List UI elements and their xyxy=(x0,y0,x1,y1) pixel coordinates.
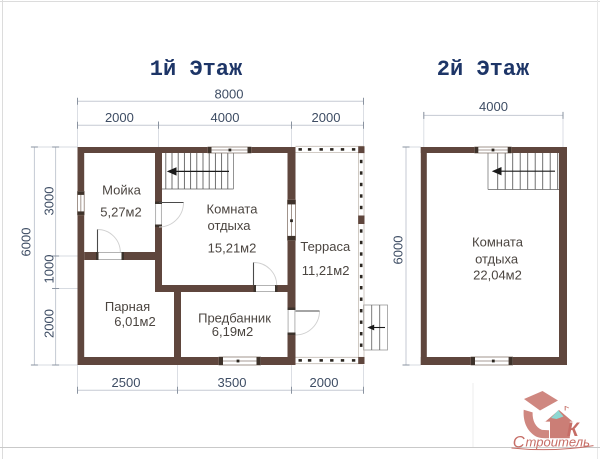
svg-text:2000: 2000 xyxy=(105,110,134,125)
svg-text:3500: 3500 xyxy=(218,375,247,390)
svg-text:6,19м2: 6,19м2 xyxy=(212,324,253,339)
svg-text:2000: 2000 xyxy=(42,309,57,338)
svg-text:8000: 8000 xyxy=(215,87,244,102)
svg-text:6,01м2: 6,01м2 xyxy=(114,314,155,329)
svg-text:4000: 4000 xyxy=(211,110,240,125)
svg-text:отдыха: отдыха xyxy=(475,251,519,266)
svg-text:Комната: Комната xyxy=(472,235,524,250)
svg-text:6000: 6000 xyxy=(19,228,34,257)
svg-text:1000: 1000 xyxy=(42,255,57,284)
svg-text:4000: 4000 xyxy=(479,99,508,114)
svg-text:Парная: Парная xyxy=(105,299,150,314)
svg-text:1й Этаж: 1й Этаж xyxy=(150,57,243,82)
svg-text:15,21м2: 15,21м2 xyxy=(208,241,257,256)
svg-text:2й Этаж: 2й Этаж xyxy=(437,57,530,82)
svg-text:6000: 6000 xyxy=(391,236,406,265)
svg-text:5,27м2: 5,27м2 xyxy=(100,205,141,220)
svg-text:отдыха: отдыха xyxy=(208,218,252,233)
svg-text:11,21м2: 11,21м2 xyxy=(302,263,350,278)
svg-text:2000: 2000 xyxy=(310,375,339,390)
svg-text:3000: 3000 xyxy=(42,187,57,216)
svg-text:2000: 2000 xyxy=(312,110,341,125)
svg-text:Терраса: Терраса xyxy=(300,239,351,254)
svg-text:Комната: Комната xyxy=(207,202,259,217)
svg-text:Мойка: Мойка xyxy=(102,183,141,198)
svg-text:2500: 2500 xyxy=(112,375,141,390)
svg-text:22,04м2: 22,04м2 xyxy=(473,268,522,283)
